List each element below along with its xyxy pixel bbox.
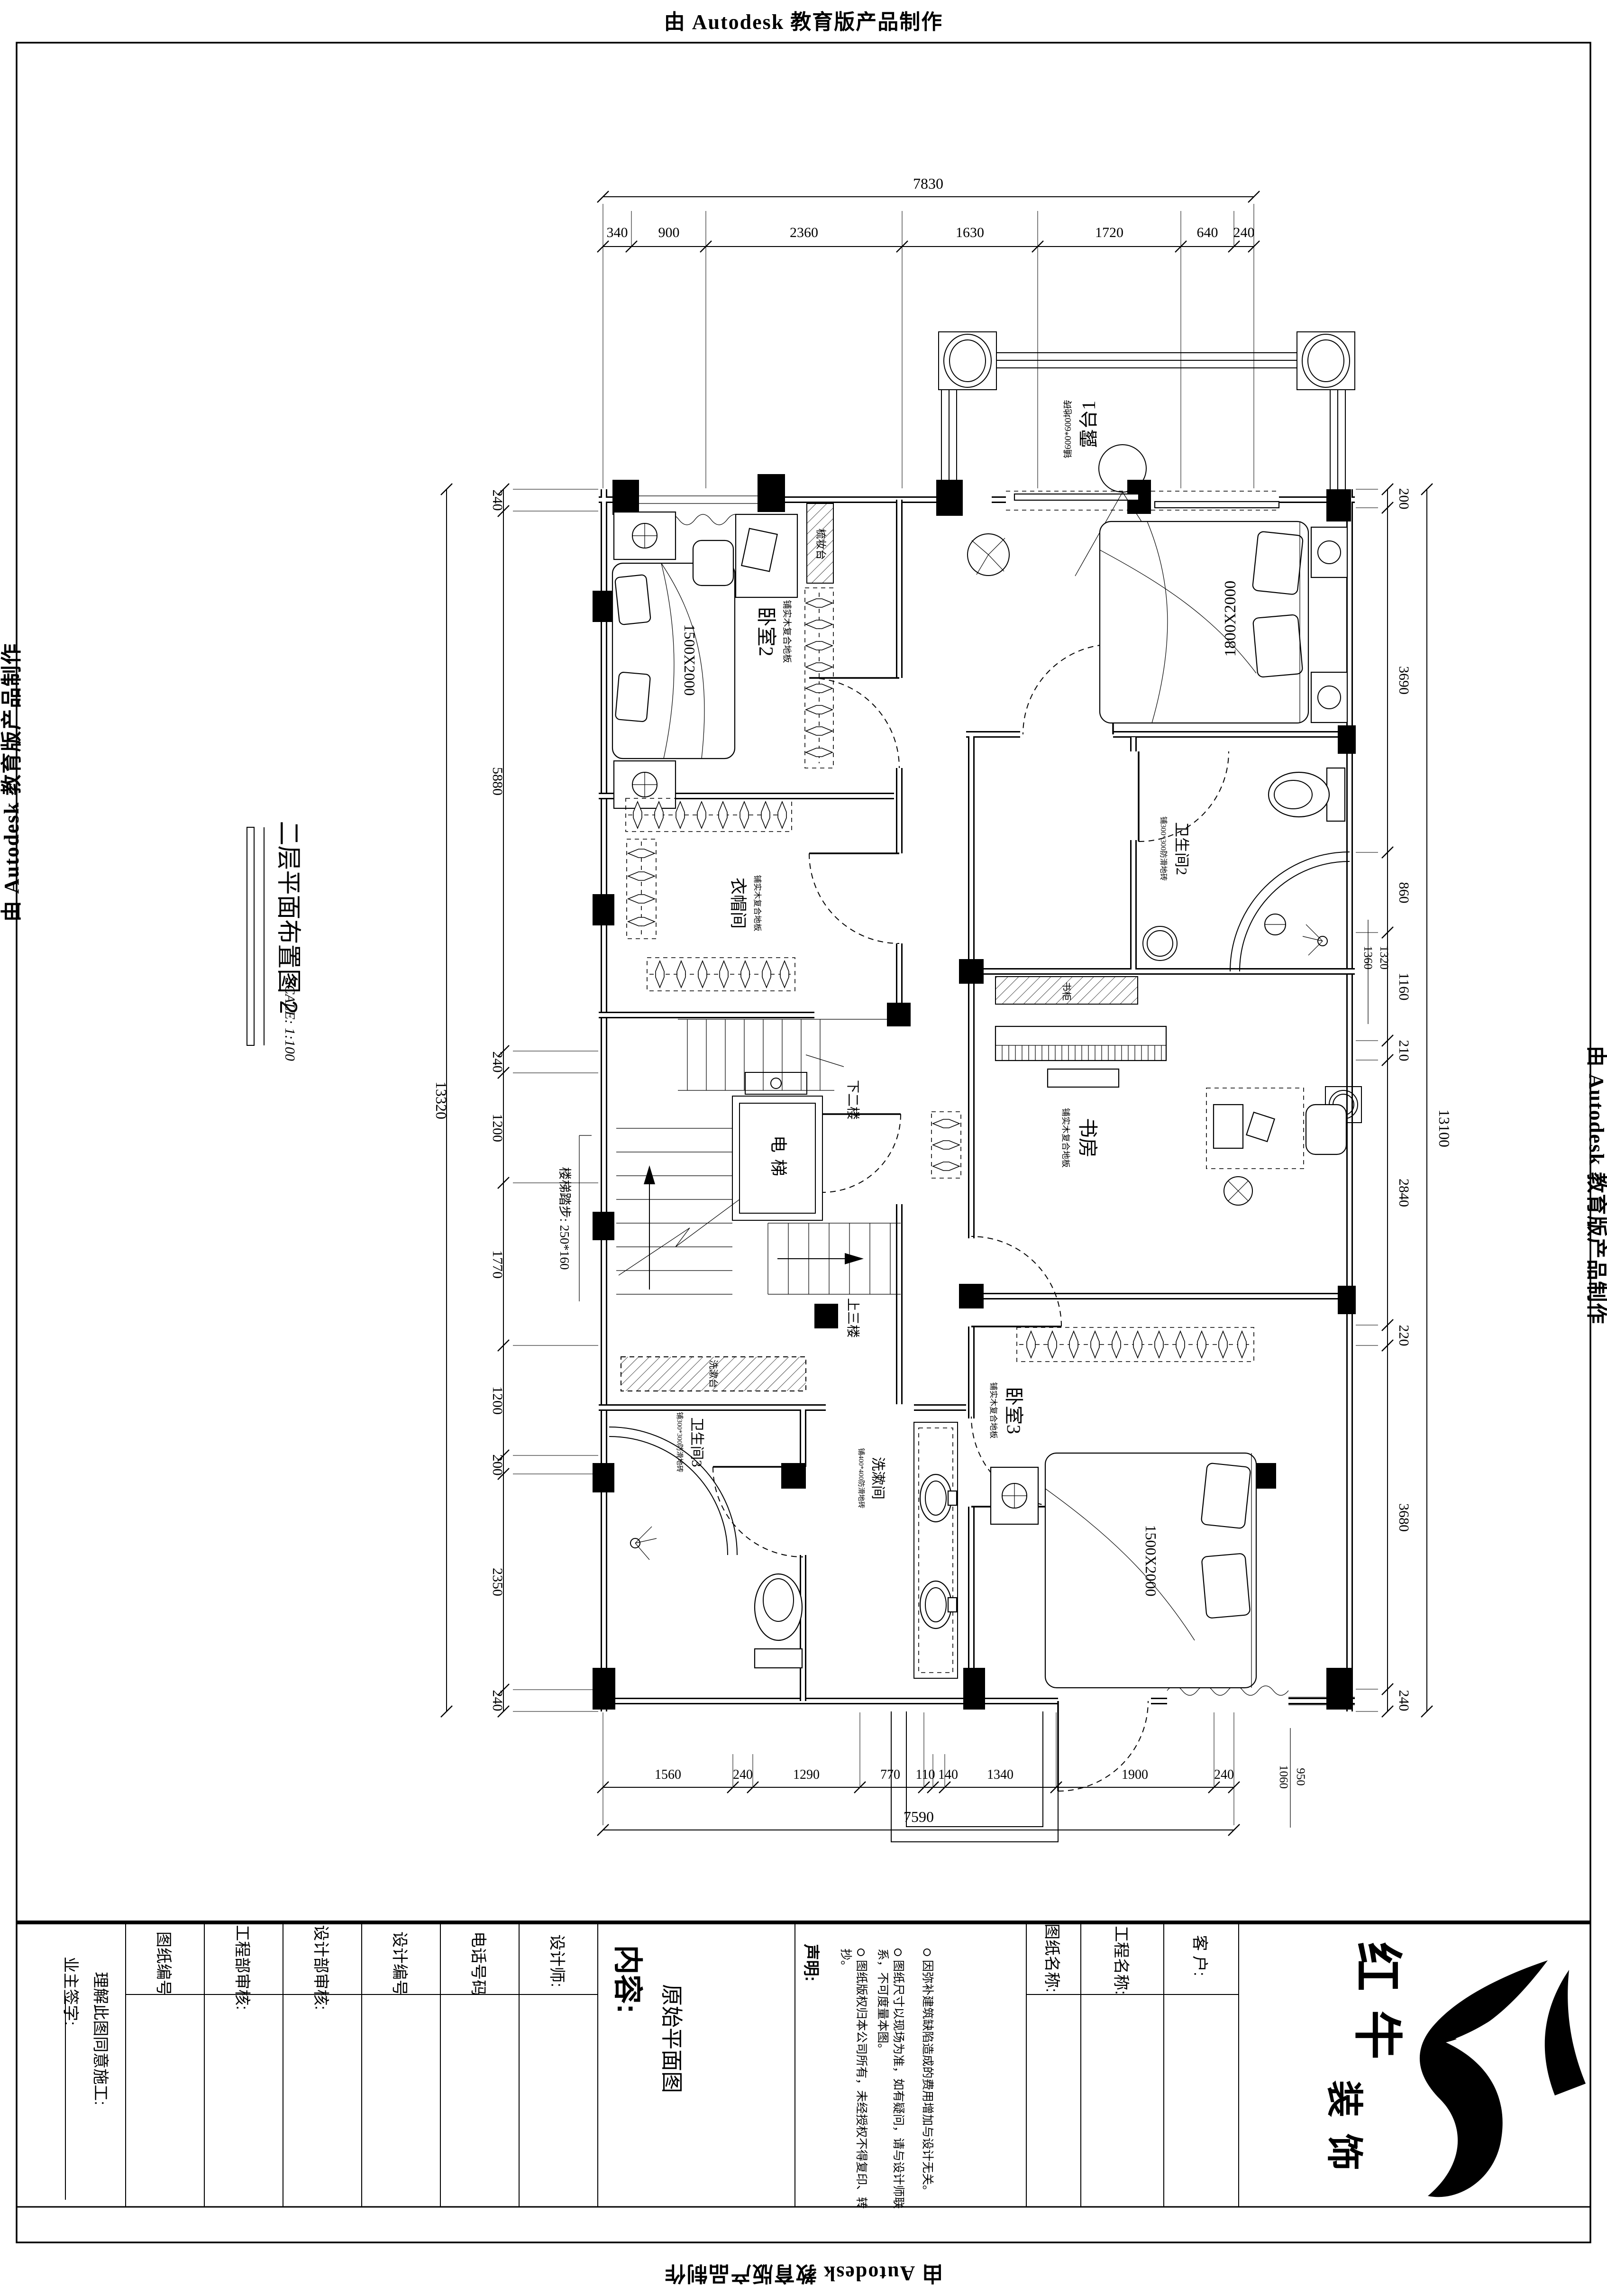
dim-left: 240 5880 240 1200 1770 1200 200 2350 240… (433, 484, 598, 1717)
declaration-text: 图纸版权归本公司所有，未经授权不得复印、转抄。 (839, 1948, 868, 2209)
room-label-terrace: 露台1 (1078, 401, 1099, 448)
label-vanity: 洗漱台 (708, 1360, 719, 1388)
bathroom2-fixtures (1230, 768, 1350, 971)
dim: 1290 (793, 1767, 820, 1782)
dim: 1560 (655, 1767, 681, 1782)
room-spec-bath2: 铺300*300防滑地砖 (1159, 816, 1168, 881)
dim: 5880 (490, 767, 505, 796)
dim-top: 7830 340 900 2360 1630 1720 640 240 (597, 175, 1260, 488)
stair-note: 楼梯踏步: 250*160 (557, 1167, 572, 1270)
cloakroom-wardrobe (626, 798, 961, 1178)
bedroom1-furniture (968, 521, 1347, 723)
room-label-bath2: 卫生间2 (1173, 822, 1190, 875)
dim-right: 200 3690 860 1160 210 2840 220 3680 240 … (1356, 484, 1453, 1717)
bull-logo (1420, 1960, 1586, 2197)
dim: 140 (938, 1767, 958, 1782)
room-spec-bath3: 铺300*300防滑地砖 (676, 1412, 684, 1473)
dim-right-total: 13100 (1436, 1109, 1453, 1147)
dim: 200 (1396, 488, 1412, 510)
room-spec-terrace: 铺600*600地砖 (1063, 400, 1073, 458)
room-spec-study: 铺实木复合地板 (1061, 1108, 1070, 1168)
dim: 210 (1396, 1040, 1412, 1061)
room-label-study: 书房 (1076, 1118, 1098, 1158)
field-design-no: 设计编号 (390, 1931, 413, 1996)
dim: 1360 (1361, 946, 1374, 970)
declaration-item: 因弥补建筑缺陷造成的费用增加与设计无关。 (920, 1948, 935, 2214)
dim: 340 (607, 225, 628, 240)
dim: 1200 (490, 1386, 505, 1415)
bathroom3-fixtures (609, 1357, 806, 1668)
declaration-text: 图纸尺寸以现场为准，如有疑问，请与设计师联系，不可度量本图。 (876, 1948, 905, 2209)
field-design-review: 设计部审核: (311, 1925, 334, 2010)
room-label-bedroom3: 卧室3 (1003, 1387, 1024, 1434)
dim: 2840 (1396, 1179, 1412, 1207)
room-spec-bedroom2: 铺实木复合地板 (782, 600, 792, 663)
dim: 1060 (1277, 1765, 1290, 1789)
bed-size-bedroom1: 1800X2000 (1222, 581, 1239, 657)
dim: 1900 (1122, 1767, 1148, 1782)
room-label-cloakroom: 衣帽间 (729, 878, 748, 929)
dim: 770 (880, 1767, 900, 1782)
dim: 1770 (490, 1250, 505, 1279)
brand-name-bottom: 装饰 (1321, 2080, 1374, 2186)
dim: 1340 (987, 1767, 1014, 1782)
field-phone: 电话号码 (468, 1931, 492, 1996)
dim: 240 (1214, 1767, 1234, 1782)
room-label-washroom: 洗漱间 (870, 1457, 886, 1500)
dim: 240 (1233, 225, 1255, 240)
dim-left-total: 13320 (433, 1081, 450, 1119)
field-drawing-no: 图纸编号 (154, 1931, 177, 1996)
agree-label: 理解此图同意施工: (91, 1972, 114, 2105)
drawing-title-group: 二层平面布置图 2 SCALE: 1:100 (247, 821, 302, 1061)
washroom-fixtures (914, 1422, 958, 1678)
elevator: 电梯 (732, 1072, 822, 1220)
room-spec-cloakroom: 铺实木复合地板 (753, 875, 762, 932)
declaration-title: 声明: (801, 1944, 824, 1981)
bullet-icon (923, 1948, 931, 1956)
room-label-bedroom2: 卧室2 (755, 606, 777, 656)
owner-sign-label: 业主签字: (61, 1957, 84, 2025)
drawing-sheet: 由 Autodesk 教育版产品制作 由 Autodesk 教育版产品制作 由 … (0, 0, 1607, 2296)
client-label: 客 户: (1190, 1935, 1213, 1976)
stairs: 楼梯踏步: 250*160 下二楼 上三楼 (557, 1019, 901, 1338)
room-label-bath3: 卫生间3 (689, 1418, 704, 1467)
dim-bottom-total: 7590 (904, 1808, 934, 1825)
elevator-label: 电梯 (769, 1135, 788, 1183)
brand-name-top: 红牛 (1346, 1942, 1418, 2078)
field-designer: 设计师: (547, 1934, 570, 1987)
declaration-item: 图纸尺寸以现场为准，如有疑问，请与设计师联系，不可度量本图。 (875, 1948, 906, 2214)
room-spec-washroom: 铺400*400防滑地砖 (857, 1448, 865, 1509)
dim: 1720 (1095, 225, 1123, 240)
dim: 1200 (490, 1114, 505, 1142)
dim: 1320 (1378, 946, 1390, 970)
dim: 2350 (490, 1568, 505, 1596)
room-spec-bedroom3: 铺实木复合地板 (989, 1382, 998, 1439)
terrace-structure (939, 332, 1355, 489)
dim: 240 (490, 1052, 505, 1073)
dim: 3680 (1396, 1503, 1412, 1532)
field-eng-review: 工程部审核: (232, 1925, 256, 2010)
dim: 3690 (1396, 666, 1412, 695)
bullet-icon (894, 1948, 902, 1956)
drawing-name-label: 图纸名称: (1042, 1923, 1065, 1992)
dim: 900 (658, 225, 680, 240)
label-dresser: 梳妆台 (815, 529, 827, 560)
label-bookcase: 书柜 (1061, 982, 1072, 1001)
stair-down-label: 下二楼 (845, 1080, 860, 1120)
dim: 240 (733, 1767, 753, 1782)
study-furniture (995, 977, 1346, 1205)
dim: 1160 (1396, 973, 1412, 1001)
dim: 200 (490, 1454, 505, 1476)
dim: 110 (916, 1767, 935, 1782)
stair-up-label: 上三楼 (845, 1298, 860, 1338)
dim: 220 (1396, 1325, 1412, 1346)
dim: 860 (1396, 882, 1412, 904)
declaration-item: 图纸版权归本公司所有，未经授权不得复印、转抄。 (838, 1948, 869, 2214)
declaration-text: 因弥补建筑缺陷造成的费用增加与设计无关。 (921, 1960, 934, 2197)
dim: 240 (490, 490, 505, 511)
bedroom2-furniture (612, 503, 833, 808)
content-label: 内容: (609, 1945, 652, 2014)
drawing-scale: SCALE: 1:100 (282, 978, 298, 1061)
dim: 640 (1197, 225, 1218, 240)
bed-size-bedroom3: 1500X2000 (1142, 1525, 1160, 1596)
dim: 950 (1294, 1768, 1307, 1786)
dim: 240 (1396, 1690, 1412, 1711)
bedroom3-furniture (991, 1327, 1256, 1688)
dim: 1630 (956, 225, 984, 240)
dim: 240 (490, 1690, 505, 1711)
dim-top-total: 7830 (913, 175, 943, 192)
project-name-label: 工程名称: (1111, 1926, 1134, 1994)
content-value: 原始平面图 (657, 1984, 689, 2093)
bullet-icon (857, 1948, 865, 1956)
bed-size-bedroom2: 1500X2000 (681, 624, 698, 695)
dim: 2360 (790, 225, 818, 240)
